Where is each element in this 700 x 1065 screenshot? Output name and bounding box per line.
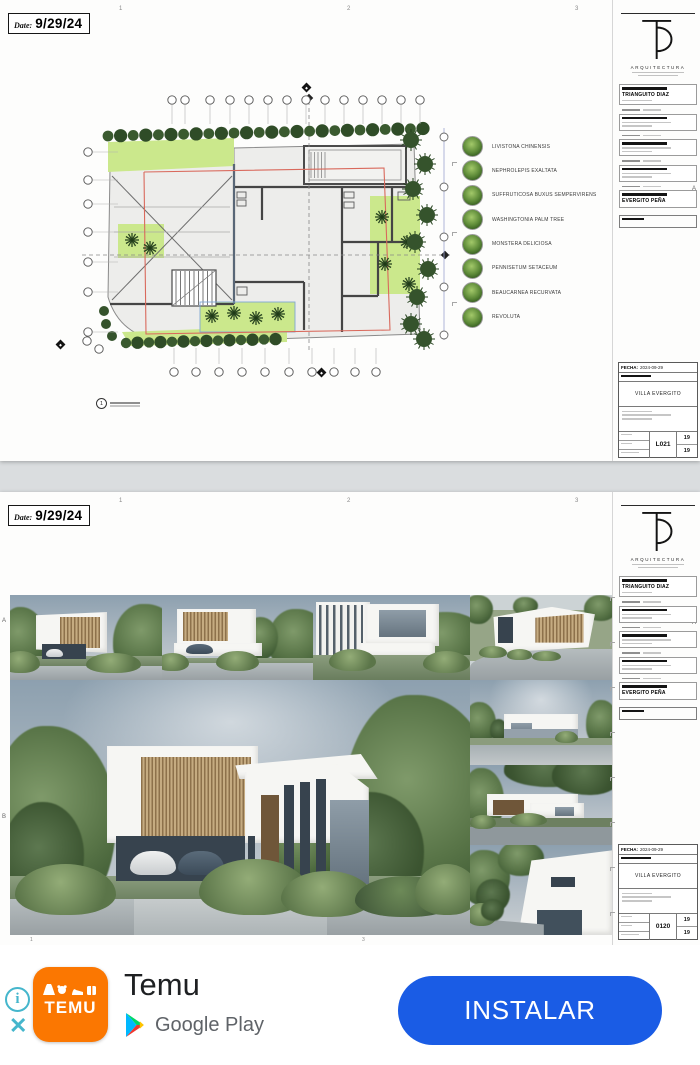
builder-name: EVERGITO PEÑA bbox=[622, 198, 694, 204]
titleblock-field bbox=[619, 606, 697, 623]
plant-icon bbox=[462, 160, 483, 181]
ad-banner: i ✕ TEMU Temu Google Play INSTALAR bbox=[0, 945, 700, 1065]
grid-letter: A bbox=[2, 618, 6, 624]
close-icon[interactable]: ✕ bbox=[9, 1015, 27, 1037]
titleblock-field bbox=[619, 657, 697, 674]
date-box: Date: 9/29/24 bbox=[8, 505, 90, 526]
client-name: TRIANGUITO DIAZ bbox=[622, 92, 694, 98]
legend-row: MONSTERA DELICIOSA bbox=[462, 234, 608, 255]
legend-row: BEAUCARNEA RECURVATA bbox=[462, 282, 608, 303]
plant-icon bbox=[462, 282, 483, 303]
titleblock-field bbox=[619, 631, 697, 648]
titleblock-field: EVERGITO PEÑA bbox=[619, 682, 697, 700]
render-main bbox=[10, 680, 470, 935]
plant-label: LIVISTONA CHINENSIS bbox=[492, 144, 550, 150]
grid-number: 3 bbox=[575, 498, 578, 504]
footer-grid-number: 1 bbox=[30, 937, 33, 943]
plant-icon bbox=[462, 185, 483, 206]
callout-number: 1 bbox=[96, 398, 107, 409]
firm-name: ARQUITECTURA bbox=[618, 557, 698, 562]
sheet-code: 0120 bbox=[650, 914, 676, 940]
titleblock-divider bbox=[612, 492, 613, 945]
legend-row: NEPHROLEPIS EXALTATA bbox=[462, 160, 608, 181]
titleblock-field: EVERGITO PEÑA bbox=[619, 190, 697, 208]
fecha-value: 2024-09-29 bbox=[640, 365, 663, 370]
drawing-callout: 1 bbox=[96, 398, 140, 409]
titleblock-field bbox=[619, 165, 697, 182]
footer-grid-number: 3 bbox=[362, 937, 365, 943]
sheet-num: 19 bbox=[677, 927, 697, 940]
render-side-thumbnail bbox=[470, 680, 612, 765]
plant-icon bbox=[462, 258, 483, 279]
titleblock-field: TRIANGUITO DIAZ bbox=[619, 576, 697, 597]
section-marker bbox=[302, 83, 312, 93]
render-thumbnail bbox=[162, 595, 313, 680]
plan-sheet: Date: 9/29/24 1 2 3 A 1 LIVISTONA CHINEN… bbox=[0, 0, 700, 461]
td-logo bbox=[638, 509, 678, 555]
grid-number: 1 bbox=[119, 498, 122, 504]
render-side-thumbnail bbox=[470, 845, 612, 935]
plant-label: BEAUCARNEA RECURVATA bbox=[492, 290, 561, 296]
plant-legend: LIVISTONA CHINENSISNEPHROLEPIS EXALTATAS… bbox=[462, 136, 608, 331]
titleblock-field: TRIANGUITO DIAZ bbox=[619, 84, 697, 105]
titleblock: ARQUITECTURA TRIANGUITO DIAZ EVERGITO PE… bbox=[618, 505, 698, 720]
legend-row: WASHINGTONIA PALM TREE bbox=[462, 209, 608, 230]
client-name: TRIANGUITO DIAZ bbox=[622, 584, 694, 590]
grid-number: 3 bbox=[575, 6, 578, 12]
site-plan-drawing bbox=[82, 92, 452, 417]
render-sheet: Date: 9/29/24 1 2 3 A A B 1 3 ARQUITECTU… bbox=[0, 492, 700, 945]
date-value: 9/29/24 bbox=[35, 16, 82, 31]
plant-icon bbox=[462, 136, 483, 157]
date-value: 9/29/24 bbox=[35, 508, 82, 523]
callout-title-bars bbox=[110, 401, 140, 407]
sheet-code: L021 bbox=[650, 432, 676, 458]
titleblock-divider bbox=[612, 0, 613, 461]
project-name: VILLA EVERGITO bbox=[619, 382, 697, 407]
legend-row: PENNISETUM SETACEUM bbox=[462, 258, 608, 279]
store-name: Google Play bbox=[155, 1014, 264, 1037]
google-play-icon bbox=[124, 1013, 146, 1037]
builder-name: EVERGITO PEÑA bbox=[622, 690, 694, 696]
date-label: Date: bbox=[14, 21, 32, 30]
plant-icon bbox=[462, 234, 483, 255]
firm-name: ARQUITECTURA bbox=[618, 65, 698, 70]
fecha-label: FECHA: bbox=[621, 365, 638, 370]
plant-label: REVOLUTA bbox=[492, 314, 520, 320]
fecha-value: 2024-09-29 bbox=[640, 847, 663, 852]
titleblock-field bbox=[619, 114, 697, 131]
titleblock-lower: FECHA: 2024-09-29 VILLA EVERGITO 0120 19… bbox=[618, 844, 698, 940]
plant-icon bbox=[462, 209, 483, 230]
plant-label: WASHINGTONIA PALM TREE bbox=[492, 217, 564, 223]
render-side-thumbnail bbox=[470, 765, 612, 845]
sheet-num: 19 bbox=[677, 914, 697, 928]
grid-letter: B bbox=[2, 814, 6, 820]
legend-row: LIVISTONA CHINENSIS bbox=[462, 136, 608, 157]
titleblock: ARQUITECTURA TRIANGUITO DIAZ EVERGITO PE… bbox=[618, 13, 698, 228]
plant-label: SUFFRUTICOSA BUXUS SEMPERVIRENS bbox=[492, 192, 596, 198]
grid-number: 2 bbox=[347, 6, 350, 12]
titleblock-field bbox=[619, 139, 697, 156]
info-glyph: i bbox=[15, 991, 19, 1008]
titleblock-lower: FECHA: 2024-09-29 VILLA EVERGITO L021 19… bbox=[618, 362, 698, 458]
legend-row: REVOLUTA bbox=[462, 307, 608, 328]
plant-label: NEPHROLEPIS EXALTATA bbox=[492, 168, 557, 174]
plant-label: MONSTERA DELICIOSA bbox=[492, 241, 552, 247]
app-name[interactable]: Temu bbox=[124, 967, 200, 1003]
td-logo bbox=[638, 17, 678, 63]
render-aerial-thumbnail bbox=[470, 595, 612, 680]
legend-row: SUFFRUTICOSA BUXUS SEMPERVIRENS bbox=[462, 185, 608, 206]
date-label: Date: bbox=[14, 513, 32, 522]
titleblock-notes-box bbox=[619, 215, 697, 228]
section-marker bbox=[56, 340, 66, 350]
google-play[interactable]: Google Play bbox=[124, 1013, 264, 1037]
fecha-label: FECHA: bbox=[621, 847, 638, 852]
titleblock-notes-box bbox=[619, 707, 697, 720]
temu-icon-glyphs bbox=[43, 983, 99, 997]
info-icon[interactable]: i bbox=[5, 987, 30, 1012]
temu-app-icon[interactable]: TEMU bbox=[33, 967, 108, 1042]
project-name: VILLA EVERGITO bbox=[619, 864, 697, 889]
install-button[interactable]: INSTALAR bbox=[398, 976, 662, 1045]
temu-icon-word: TEMU bbox=[33, 998, 108, 1018]
sheet-num: 19 bbox=[677, 445, 697, 458]
screenshot-root: Date: 9/29/24 1 2 3 A 1 LIVISTONA CHINEN… bbox=[0, 0, 700, 1065]
grid-number: 1 bbox=[119, 6, 122, 12]
grid-number: 2 bbox=[347, 498, 350, 504]
render-thumbnail bbox=[10, 595, 162, 680]
plant-icon bbox=[462, 307, 483, 328]
render-thumbnail bbox=[313, 595, 470, 680]
date-box: Date: 9/29/24 bbox=[8, 13, 90, 34]
sheet-num: 19 bbox=[677, 432, 697, 446]
plant-label: PENNISETUM SETACEUM bbox=[492, 265, 557, 271]
